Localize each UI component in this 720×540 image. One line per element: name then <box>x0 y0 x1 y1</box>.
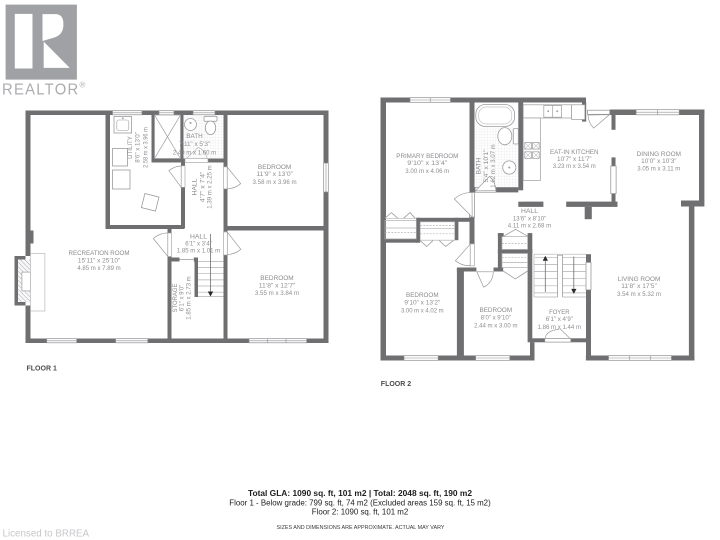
svg-text:3.23 m x 3.54 m: 3.23 m x 3.54 m <box>553 163 596 170</box>
svg-text:4.85 m x 7.89 m: 4.85 m x 7.89 m <box>77 265 120 272</box>
svg-text:6’1” x 3’4”: 6’1” x 3’4” <box>185 240 212 247</box>
svg-text:Licensed to BRREA: Licensed to BRREA <box>3 529 90 540</box>
svg-text:PRIMARY BEDROOM: PRIMARY BEDROOM <box>396 153 458 160</box>
svg-text:LIVING ROOM: LIVING ROOM <box>618 276 661 283</box>
svg-text:11’8” x 17’5”: 11’8” x 17’5” <box>621 283 657 290</box>
svg-text:FLOOR 2: FLOOR 2 <box>381 381 411 388</box>
svg-text:1.85 m x 1.01 m: 1.85 m x 1.01 m <box>177 247 220 254</box>
svg-text:10’7” x 11’7”: 10’7” x 11’7” <box>557 156 592 163</box>
svg-text:6’1” x 9’0”: 6’1” x 9’0” <box>179 285 186 312</box>
svg-text:15’11” x 25’10”: 15’11” x 25’10” <box>78 257 120 264</box>
svg-text:4.11 m x 2.68 m: 4.11 m x 2.68 m <box>508 223 551 230</box>
svg-text:1.86 m x 1.44 m: 1.86 m x 1.44 m <box>538 324 581 331</box>
svg-text:7’11” x 5’3”: 7’11” x 5’3” <box>179 141 210 148</box>
svg-text:BEDROOM: BEDROOM <box>406 292 439 299</box>
svg-text:HALL: HALL <box>521 208 538 215</box>
svg-text:REALTOR: REALTOR <box>2 81 80 98</box>
svg-text:8’0” x 9’10”: 8’0” x 9’10” <box>481 315 511 322</box>
svg-text:Total GLA: 1090 sq. ft, 101 m2: Total GLA: 1090 sq. ft, 101 m2 | Total: … <box>248 488 472 498</box>
svg-text:RECREATION ROOM: RECREATION ROOM <box>69 250 130 257</box>
svg-text:9’10” x 13’4”: 9’10” x 13’4” <box>407 160 447 167</box>
svg-text:BEDROOM: BEDROOM <box>480 307 513 314</box>
svg-text:5’4” x 10’1”: 5’4” x 10’1” <box>483 150 490 183</box>
svg-text:10’0” x 10’3”: 10’0” x 10’3” <box>641 158 676 165</box>
svg-text:2.44 m x 3.00 m: 2.44 m x 3.00 m <box>474 322 517 329</box>
svg-text:3.55 m x 3.84 m: 3.55 m x 3.84 m <box>255 290 299 297</box>
svg-text:3.00 m x 4.06 m: 3.00 m x 4.06 m <box>405 168 449 175</box>
svg-text:HALL: HALL <box>190 233 207 240</box>
svg-text:9’10” x 13’2”: 9’10” x 13’2” <box>404 300 440 307</box>
svg-text:Floor 2: 1090 sq. ft, 101 m2: Floor 2: 1090 sq. ft, 101 m2 <box>312 508 409 517</box>
svg-text:11’9” x 13’0”: 11’9” x 13’0” <box>256 171 293 178</box>
svg-text:2.40 m x 1.60 m: 2.40 m x 1.60 m <box>173 150 216 157</box>
svg-text:FOYER: FOYER <box>549 309 570 316</box>
svg-text:11’8” x 12’7”: 11’8” x 12’7” <box>259 283 296 290</box>
svg-text:HALL: HALL <box>191 178 198 195</box>
svg-text:BEDROOM: BEDROOM <box>260 275 293 282</box>
svg-text:2.58 m x 3.96 m: 2.58 m x 3.96 m <box>143 127 150 168</box>
svg-text:BATH: BATH <box>186 133 203 140</box>
svg-text:3.00 m x 4.02 m: 3.00 m x 4.02 m <box>401 308 444 315</box>
svg-text:8’6” x 13’0”: 8’6” x 13’0” <box>135 132 142 163</box>
svg-text:1.62 m x 3.07 m: 1.62 m x 3.07 m <box>490 144 497 187</box>
svg-text:3.58 m x 3.96 m: 3.58 m x 3.96 m <box>253 179 297 186</box>
svg-text:BATH: BATH <box>476 157 483 174</box>
svg-text:FLOOR 1: FLOOR 1 <box>27 366 57 373</box>
svg-text:3.54 m x 5.32 m: 3.54 m x 5.32 m <box>617 291 661 298</box>
svg-text:4’7” x 7’4”: 4’7” x 7’4” <box>199 172 206 203</box>
svg-text:Floor 1 - Below grade: 799 sq.: Floor 1 - Below grade: 799 sq. ft, 74 m2… <box>229 498 491 507</box>
svg-text:6’1” x 4’9”: 6’1” x 4’9” <box>546 316 573 323</box>
svg-text:UTILITY: UTILITY <box>127 136 134 159</box>
svg-text:SIZES AND DIMENSIONS ARE APPRO: SIZES AND DIMENSIONS ARE APPROXIMATE. AC… <box>277 525 445 531</box>
svg-text:®: ® <box>80 81 86 90</box>
svg-text:1.39 m x 2.25 m: 1.39 m x 2.25 m <box>206 165 213 208</box>
svg-text:3.05 m x 3.11 m: 3.05 m x 3.11 m <box>637 165 680 172</box>
svg-text:1.85 m x 2.73 m: 1.85 m x 2.73 m <box>186 276 193 319</box>
